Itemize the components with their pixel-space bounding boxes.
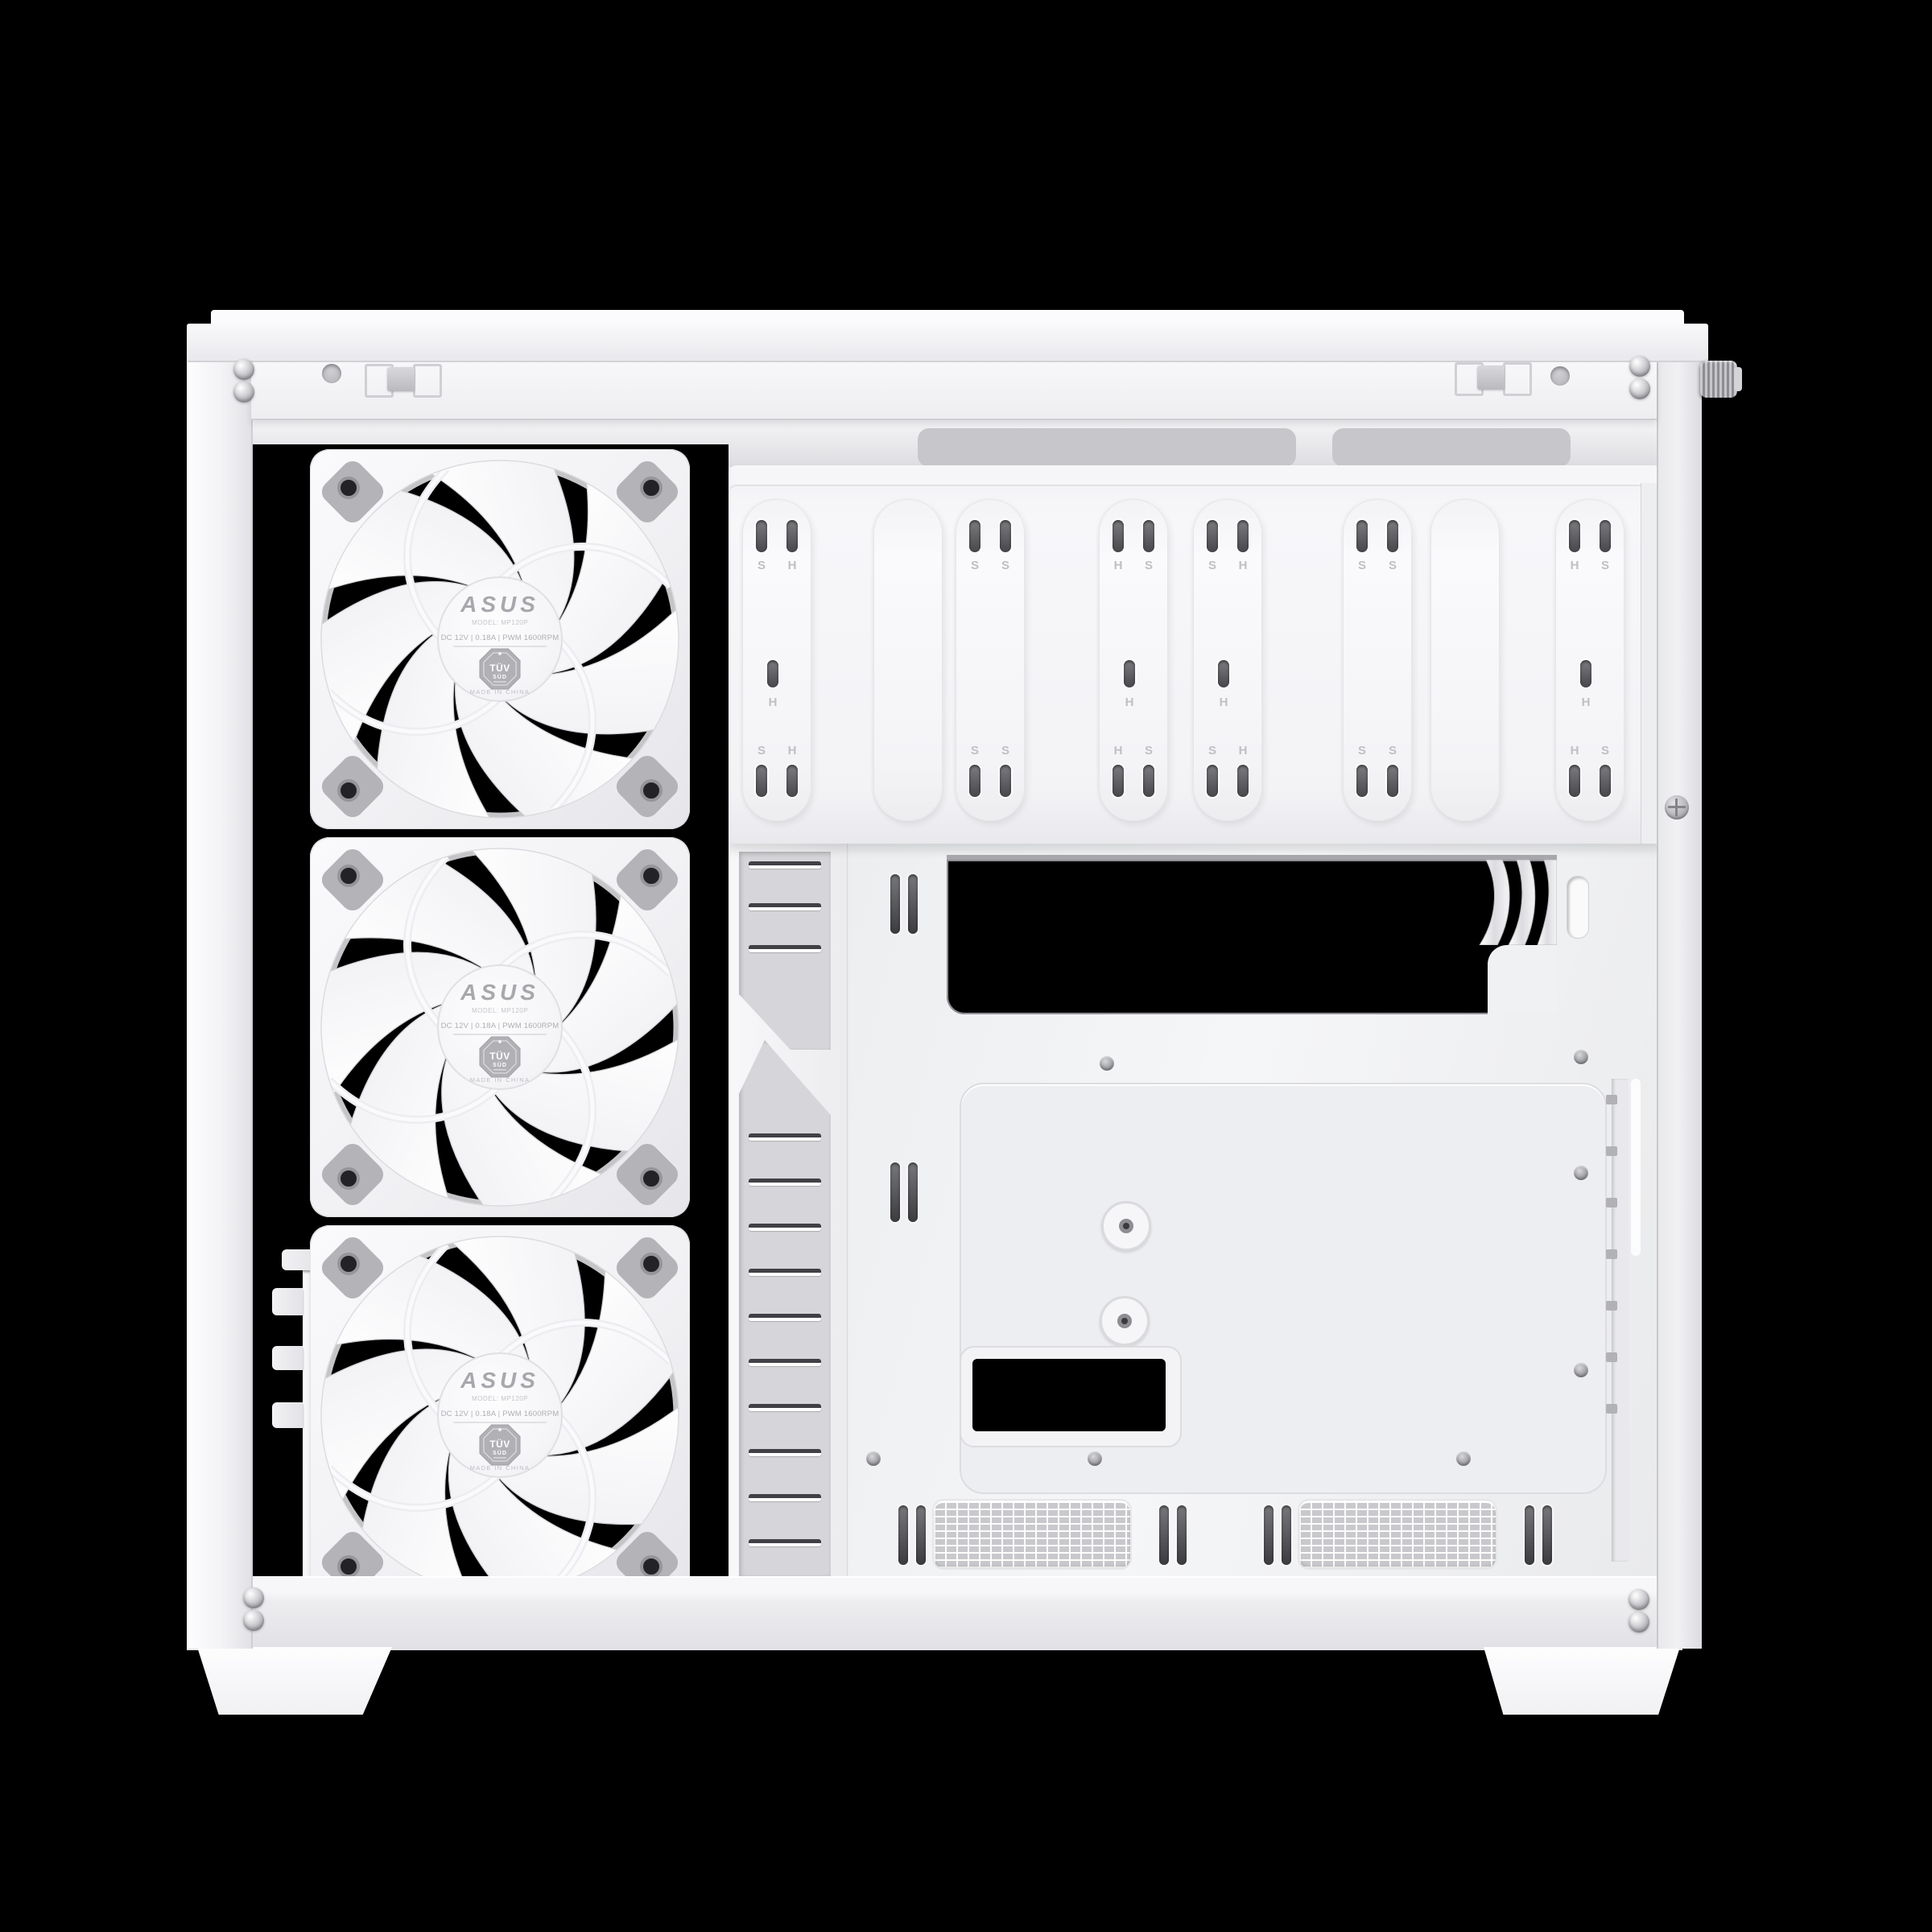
rail-mount-slot	[1207, 765, 1218, 797]
sud-text: SÜD	[493, 1449, 507, 1456]
standoff-screw	[1088, 1451, 1102, 1466]
fan-origin-label: MADE IN CHINA	[470, 1076, 530, 1084]
rail-mount-slot	[1218, 660, 1229, 687]
cable-grommet-ring	[1100, 1296, 1150, 1346]
rear-slot-rail	[1612, 1079, 1629, 1562]
front-panel	[187, 354, 253, 1649]
rail-mount-slot	[1000, 765, 1011, 797]
rail-letter: S	[1141, 744, 1157, 758]
bottom-vent-grille	[1298, 1499, 1497, 1570]
bottom-vent-grille	[932, 1499, 1132, 1570]
top-fan-pad	[1332, 428, 1571, 467]
rail-mount-slot	[1237, 520, 1249, 552]
tuv-text: TÜV	[489, 1050, 510, 1062]
rail-letter: H	[1567, 559, 1583, 572]
hinge-tab	[272, 1288, 303, 1315]
cable-cover-bar	[724, 844, 848, 1576]
bracket-rail: SHSHH	[1193, 499, 1262, 821]
rail-letter: S	[967, 559, 983, 572]
rivet	[1629, 1612, 1649, 1633]
cable-tie-slot	[898, 1505, 908, 1565]
rail-letter: S	[1204, 744, 1220, 758]
rail-mount-slot	[1124, 660, 1135, 687]
cover-slat	[749, 1449, 821, 1456]
fan-origin-label: MADE IN CHINA	[470, 688, 530, 696]
mount-clip	[1455, 362, 1527, 391]
front-fan: ASUS MODEL: MP120P DC 12V | 0.18A | PWM …	[310, 1225, 690, 1605]
cable-tie-slot	[890, 874, 900, 934]
cable-grommet-ring	[1101, 1201, 1151, 1251]
hinge-tab	[272, 1346, 303, 1370]
fan-spec-label: DC 12V | 0.18A | PWM 1600RPM	[441, 1022, 559, 1030]
rear-slot-highlight	[1631, 1079, 1641, 1256]
front-fan: ASUS MODEL: MP120P DC 12V | 0.18A | PWM …	[310, 837, 690, 1217]
cover-slat	[749, 1359, 821, 1366]
rail-mount-slot	[969, 520, 980, 552]
rail-mount-slot	[1113, 520, 1124, 552]
front-fan: ASUS MODEL: MP120P DC 12V | 0.18A | PWM …	[310, 449, 690, 829]
bracket-rail	[1430, 499, 1500, 821]
top-rail	[251, 359, 1657, 420]
rail-letter: H	[1567, 744, 1583, 758]
rail-letter: S	[753, 744, 770, 758]
slot-clip	[1606, 1249, 1617, 1259]
cover-slat	[749, 1133, 821, 1141]
drive-fan-bracket: SHSHHSSSSHSHSHSHSHHSSSSHSHSH	[729, 465, 1662, 844]
rail-letter: H	[1235, 744, 1251, 758]
thumbscrew-cap	[1734, 367, 1742, 391]
cover-vent-inset	[739, 1040, 831, 1576]
tuv-text: TÜV	[489, 1438, 510, 1450]
slot-clip	[1606, 1404, 1617, 1414]
rail-letter: H	[784, 744, 800, 758]
cover-slat	[749, 1224, 821, 1231]
rail-letter: H	[1121, 696, 1137, 709]
standoff-screw	[1574, 1050, 1588, 1064]
rail-letter: S	[753, 559, 770, 572]
fan-hub: ASUS MODEL: MP120P DC 12V | 0.18A | PWM …	[438, 577, 562, 701]
sud-text: SÜD	[493, 1061, 507, 1068]
fan-origin-label: MADE IN CHINA	[470, 1464, 530, 1472]
rail-letter: S	[1385, 744, 1401, 758]
rivet	[1629, 378, 1650, 399]
rail-letter: S	[1597, 559, 1613, 572]
rail-mount-slot	[756, 520, 767, 552]
slot-clip	[1606, 1198, 1617, 1207]
cover-slat	[749, 945, 821, 952]
fan-brand-label: ASUS	[460, 980, 539, 1005]
cable-tie-slot	[1159, 1505, 1169, 1565]
bracket-rail	[873, 499, 943, 821]
cable-tie-slot	[908, 874, 918, 934]
rail-mount-slot	[1569, 520, 1580, 552]
rail-hole	[322, 364, 341, 383]
tuv-badge: TÜV SÜD	[480, 1425, 520, 1465]
fan-hub: ASUS MODEL: MP120P DC 12V | 0.18A | PWM …	[438, 965, 562, 1089]
fan-model-label: MODEL: MP120P	[472, 619, 528, 626]
fan-hub: ASUS MODEL: MP120P DC 12V | 0.18A | PWM …	[438, 1353, 562, 1477]
rail-mount-slot	[1600, 520, 1611, 552]
rail-mount-slot	[1356, 520, 1368, 552]
rail-letter: H	[1216, 696, 1232, 709]
rail-mount-slot	[1207, 520, 1218, 552]
rail-mount-slot	[1569, 765, 1580, 797]
rail-hole	[1550, 366, 1570, 386]
cable-tie-slot	[1282, 1505, 1291, 1565]
cover-slat	[749, 1539, 821, 1546]
cover-vent-inset	[739, 852, 831, 1050]
sud-text: SÜD	[493, 673, 507, 680]
rail-letter: S	[997, 559, 1013, 572]
tuv-badge: TÜV SÜD	[480, 1037, 520, 1077]
rail-mount-slot	[1143, 765, 1154, 797]
rail-mount-slot	[1143, 520, 1154, 552]
thumbscrew	[1700, 361, 1737, 398]
slot-clip	[1606, 1352, 1617, 1362]
rail-mount-slot	[786, 765, 798, 797]
bracket-rail: HSHSH	[1555, 499, 1624, 821]
rivet	[1629, 356, 1650, 377]
rail-mount-slot	[1000, 520, 1011, 552]
rail-mount-slot	[1387, 765, 1398, 797]
tuv-badge: TÜV SÜD	[480, 649, 520, 689]
fan-spec-label: DC 12V | 0.18A | PWM 1600RPM	[441, 1410, 559, 1418]
rear-panel	[1657, 354, 1702, 1649]
tuv-text: TÜV	[489, 662, 510, 674]
rail-letter: H	[1110, 744, 1126, 758]
standoff-screw	[866, 1451, 881, 1466]
cable-tie-slot	[916, 1505, 926, 1565]
rail-letter: S	[1354, 559, 1370, 572]
bracket-rail: HSHSH	[1099, 499, 1168, 821]
rail-letter: H	[784, 559, 800, 572]
rail-mount-slot	[767, 660, 778, 687]
cover-slat	[749, 1269, 821, 1276]
fan-brand-label: ASUS	[460, 1368, 539, 1393]
rear-fan-glimpse	[1475, 860, 1557, 945]
cable-tie-slot	[1542, 1505, 1552, 1565]
standoff-screw	[1574, 1166, 1588, 1180]
rail-letter: H	[1235, 559, 1251, 572]
rail-mount-slot	[1387, 520, 1398, 552]
bracket-rail: SSSS	[956, 499, 1025, 821]
rail-mount-slot	[1600, 765, 1611, 797]
rail-letter: H	[1110, 559, 1126, 572]
cable-tie-slot	[1177, 1505, 1187, 1565]
pc-case-photo: SHSHHSSSSHSHSHSHSHHSSSSHSHSH	[0, 0, 1932, 1932]
rail-letter: S	[967, 744, 983, 758]
top-panel	[187, 324, 1708, 362]
rail-letter: H	[1578, 696, 1594, 709]
rail-mount-slot	[756, 765, 767, 797]
rail-mount-slot	[1356, 765, 1368, 797]
cable-opening	[947, 860, 1557, 1014]
fan-model-label: MODEL: MP120P	[472, 1395, 528, 1402]
rail-letter: S	[1204, 559, 1220, 572]
rivet	[233, 359, 254, 380]
cable-tie-slot	[1525, 1505, 1534, 1565]
cover-slat	[749, 903, 821, 910]
slot-clip	[1606, 1146, 1617, 1156]
fan-spec-label: DC 12V | 0.18A | PWM 1600RPM	[441, 634, 559, 642]
bottom-frame	[187, 1576, 1682, 1650]
rail-letter: S	[997, 744, 1013, 758]
cover-slat	[749, 1179, 821, 1186]
bracket-rail: SHSHH	[742, 499, 811, 821]
cable-tie-slot	[1264, 1505, 1274, 1565]
rail-mount-slot	[1580, 660, 1591, 687]
rail-letter: H	[765, 696, 781, 709]
rivet	[1629, 1589, 1649, 1610]
slot-clip	[1606, 1095, 1617, 1104]
rivet	[233, 382, 254, 402]
top-fan-pad	[918, 428, 1296, 467]
standoff-screw	[1100, 1056, 1114, 1071]
rail-letter: S	[1354, 744, 1370, 758]
cover-slat	[749, 1314, 821, 1321]
rail-mount-slot	[969, 765, 980, 797]
shroud-step	[1488, 945, 1558, 1014]
mount-clip	[365, 364, 437, 393]
hinge-tab	[272, 1402, 303, 1428]
fan-model-label: MODEL: MP120P	[472, 1007, 528, 1014]
philips-screw	[1665, 795, 1689, 819]
rail-mount-slot	[1113, 765, 1124, 797]
rail-mount-slot	[786, 520, 798, 552]
fan-brand-label: ASUS	[460, 592, 539, 617]
cover-slat	[749, 1404, 821, 1411]
standoff-screw	[1456, 1451, 1471, 1466]
bracket-rail: SSSS	[1343, 499, 1412, 821]
case-foot	[197, 1647, 392, 1715]
rail-letter: S	[1597, 744, 1613, 758]
cable-tie-slot	[908, 1162, 918, 1222]
psu-cable-cutout	[972, 1359, 1166, 1431]
rail-letter: S	[1385, 559, 1401, 572]
rivet	[243, 1610, 264, 1631]
cable-tie-slot	[890, 1162, 900, 1222]
rail-letter: S	[1141, 559, 1157, 572]
standoff-screw	[1574, 1363, 1588, 1377]
slot-clip	[1606, 1301, 1617, 1311]
handle-slot	[1567, 876, 1589, 939]
cover-slat	[749, 1494, 821, 1501]
rivet	[243, 1587, 264, 1608]
case-foot	[1484, 1647, 1680, 1715]
cover-slat	[749, 861, 821, 869]
rail-mount-slot	[1237, 765, 1249, 797]
